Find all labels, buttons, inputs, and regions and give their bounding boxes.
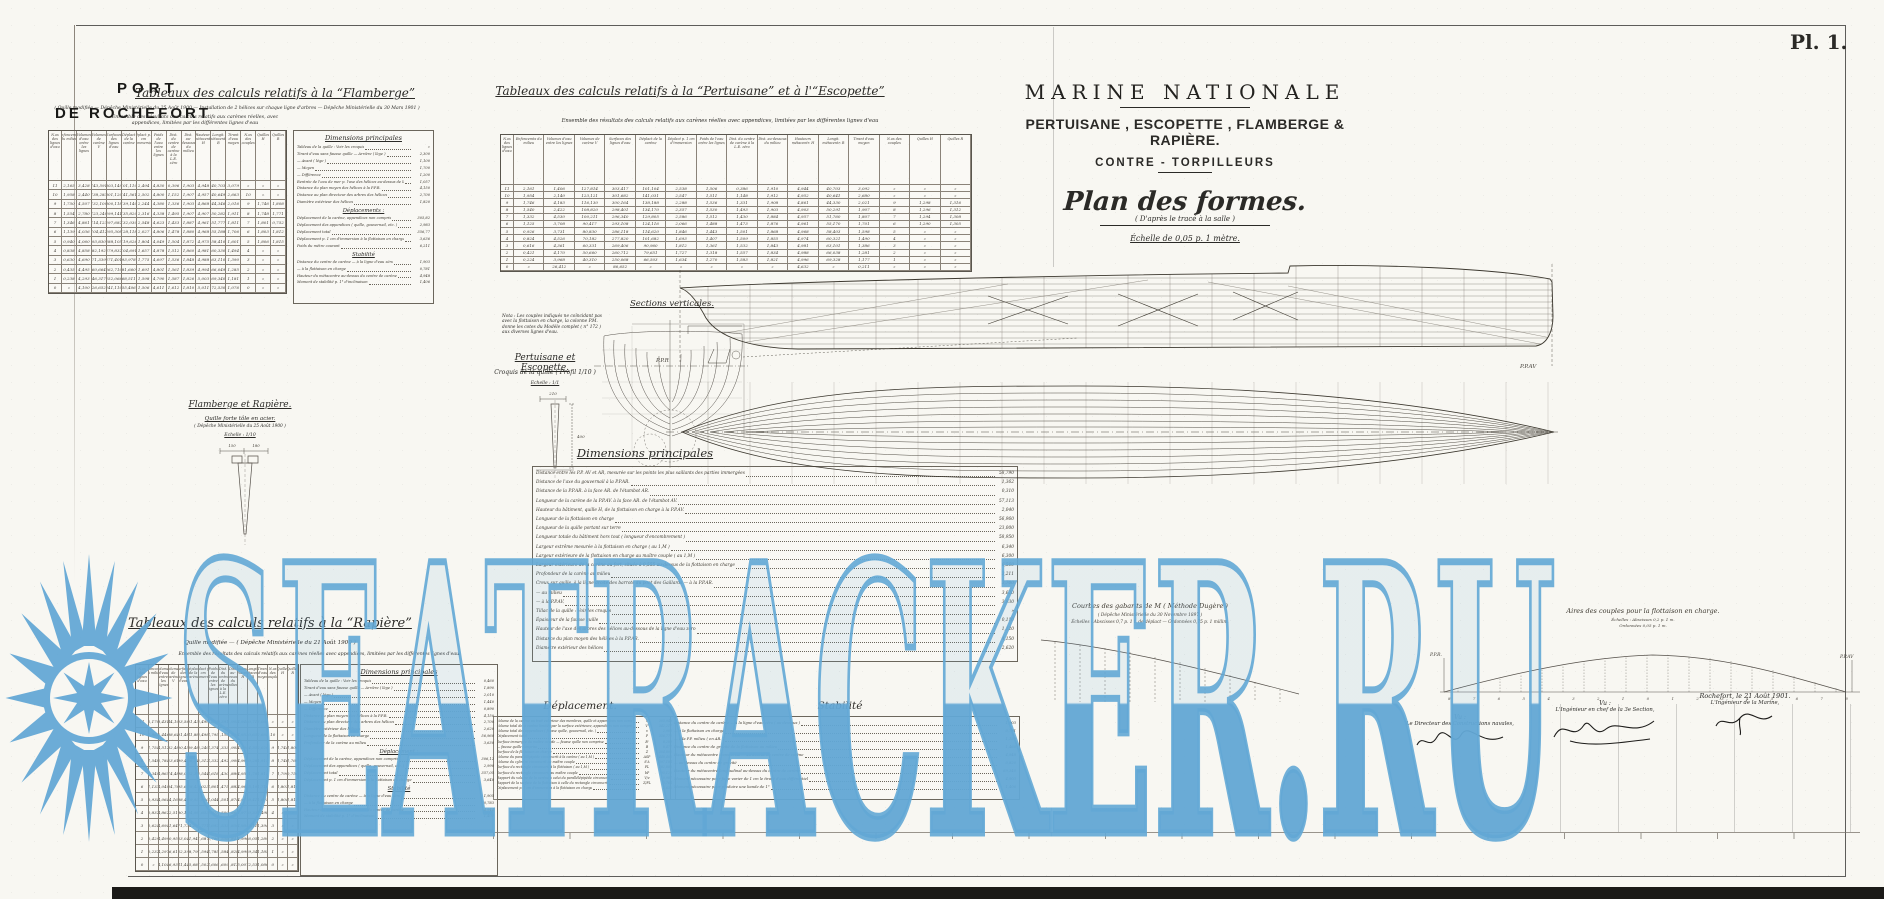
table-cell: 4,858 <box>77 246 92 255</box>
table-cell: » <box>288 858 298 871</box>
table-cell: Surfaces des lignes d'eau <box>605 135 635 185</box>
table-cell: 1,657 <box>137 246 152 255</box>
table-cell: 1,433 <box>167 218 182 227</box>
table-cell: 1,443 <box>697 228 727 235</box>
table-cell: 93,830 <box>92 237 107 246</box>
table-cell: 40,649 <box>211 190 226 199</box>
table-cell: » <box>271 190 286 199</box>
table-cell: » <box>910 228 940 235</box>
table-cell: 293,108 <box>605 221 635 228</box>
table-cell: Tirant d'eau moyen <box>849 135 879 185</box>
table-cell: 4,806 <box>152 228 167 237</box>
table-cell: 3,731 <box>544 228 574 235</box>
table-cell: Quilles R <box>271 131 286 181</box>
table-cell: 1,810 <box>182 284 197 293</box>
table-cell: 2,016 <box>226 200 241 209</box>
table-cell: 86,652 <box>605 264 635 271</box>
table-cell: 123,240 <box>92 209 107 218</box>
table-cell: 271,401 <box>107 256 122 265</box>
table-cell: 114,123 <box>92 218 107 227</box>
table-cell: 1,298 <box>910 199 940 206</box>
table-cell: 4,526 <box>544 235 574 242</box>
table-row: 101,9542,140123,121301,682141,0312,5471,… <box>501 192 971 199</box>
table-cell: 1 <box>241 274 256 283</box>
flamberge-table: N.os des lignes d'eauEnfoncemts du milie… <box>48 130 287 294</box>
list-item: — Moyen1,700 <box>297 165 430 172</box>
table-cell: 4,623 <box>152 218 167 227</box>
fr-sketch-scale: Echelle : 1/10 <box>210 433 270 438</box>
table-cell: 7 <box>49 218 62 227</box>
table-cell: N.os des couples <box>241 131 256 181</box>
table-cell: 1,488 <box>697 221 727 228</box>
table-cell: 260,712 <box>605 250 635 257</box>
table-cell: » <box>271 284 286 293</box>
border-top <box>76 25 1845 26</box>
title-marine-nationale: MARINE NATIONALE <box>1020 80 1350 104</box>
table-cell: 1,540 <box>514 207 544 214</box>
table-cell: 1,855 <box>758 235 788 242</box>
table-cell: 1,880 <box>182 228 197 237</box>
table-cell: 26,930 <box>169 858 179 871</box>
table-cell: 2,140 <box>544 192 574 199</box>
table-cell: » <box>271 246 286 255</box>
table-cell: 1,750 <box>62 200 77 209</box>
table-cell: 60,664 <box>92 265 107 274</box>
table-cell: 55,406 <box>122 284 137 293</box>
pe-dim-top: 210 <box>548 391 557 396</box>
table-cell: Quilles R <box>941 135 971 185</box>
aires-ppav-label: P.P.AV <box>1839 654 1854 660</box>
table-cell: 138,283 <box>92 190 107 199</box>
table-cell: 4,830 <box>152 181 167 190</box>
table-cell: 1,504 <box>167 237 182 246</box>
table-cell: 1,125 <box>514 221 544 228</box>
table-cell: 4,957 <box>196 190 211 199</box>
table-cell: 2,027 <box>137 228 152 237</box>
table-cell: 4,100 <box>77 284 92 293</box>
table-cell: 4,530 <box>544 214 574 221</box>
table-cell: 104,412 <box>92 228 107 237</box>
table-cell: 3 <box>880 242 910 249</box>
table-cell: 63,101 <box>819 242 849 249</box>
pe-dim-side: 400 <box>576 434 585 439</box>
table-cell: 2 <box>880 250 910 257</box>
table-cell: N.os des lignes d'eau <box>501 135 514 185</box>
table-cell: 4,948 <box>196 181 211 190</box>
table-cell: 1,601 <box>226 237 241 246</box>
table-cell: 0 <box>268 858 278 871</box>
table-cell: 1,808 <box>271 200 286 209</box>
table-cell: 7 <box>501 214 514 221</box>
table-cell: 101,104 <box>636 185 666 192</box>
table-cell: 1,281 <box>849 250 879 257</box>
table-cell: » <box>149 858 159 871</box>
table-cell: 301,682 <box>605 192 635 199</box>
table-cell: 4,903 <box>788 207 818 214</box>
table-cell: 1,907 <box>182 209 197 218</box>
table-cell: 1,294 <box>910 214 940 221</box>
table-cell: 1,494 <box>226 246 241 255</box>
table-cell: 0 <box>241 284 256 293</box>
tick-number: 1 <box>1671 696 1674 701</box>
table-cell: 0,224 <box>514 257 544 264</box>
table-cell: 44,330 <box>819 199 849 206</box>
table-cell: 119,626 <box>122 237 137 246</box>
table-cell: » <box>910 192 940 199</box>
table-cell: 4,361 <box>544 242 574 249</box>
list-item: Déplacement de la carène, appendices non… <box>297 215 430 222</box>
table-cell: 0,926 <box>514 228 544 235</box>
table-cell: 1,530 <box>697 207 727 214</box>
table-cell: 4 <box>501 235 514 242</box>
table-cell: 1,308 <box>941 214 971 221</box>
table-cell: 262,710 <box>107 265 122 274</box>
flamberge-title: Tableaux des calculs relatifs à la “Flam… <box>130 86 420 100</box>
table-cell: 7 <box>880 214 910 221</box>
table-cell: 1,701 <box>849 221 879 228</box>
table-cell: 123,121 <box>575 192 605 199</box>
table-cell: 4,801 <box>152 265 167 274</box>
list-item: Hauteur du métacentre au-dessus du centr… <box>297 273 430 280</box>
table-cell: 60,330 <box>211 246 226 255</box>
table-cell: 4,293 <box>77 274 92 283</box>
table-cell: 303,149 <box>107 181 122 190</box>
table-cell: 1,598 <box>849 228 879 235</box>
flamberge-panel-sub1-items: Déplacement de la carène, appendices non… <box>297 215 430 250</box>
table-cell: 8 <box>501 207 514 214</box>
table-cell: » <box>271 265 286 274</box>
table-cell: N.os des couples <box>880 135 910 185</box>
table-cell: 2,502 <box>137 190 152 199</box>
list-item: Déplacement des appendices ( quille, gou… <box>297 222 430 229</box>
table-cell: 4,606 <box>209 858 219 871</box>
table-cell: Dist. au-dessous du milieu <box>182 131 197 181</box>
table-cell: 1,903 <box>758 207 788 214</box>
table-cell: 4,861 <box>77 218 92 227</box>
table-cell: 1,826 <box>182 274 197 283</box>
table-cell: » <box>256 274 271 283</box>
table-cell: 1,557 <box>727 250 757 257</box>
table-cell: Déplact p. 1 cm d'immersion <box>137 131 152 181</box>
table-cell: 1,958 <box>62 190 77 199</box>
table-cell: 143,591 <box>92 181 107 190</box>
table-cell: 0,616 <box>514 242 544 249</box>
table-cell: 4,981 <box>788 242 818 249</box>
table-cell: 1,430 <box>727 214 757 221</box>
table-cell: 297,682 <box>107 218 122 227</box>
list-item: Hauteur du bâtiment, quille H, de la flo… <box>536 506 1014 515</box>
table-cell: 1,506 <box>697 185 727 192</box>
table-cell: 40,703 <box>819 185 849 192</box>
table-cell: 4,974 <box>788 235 818 242</box>
table-cell: 5 <box>501 228 514 235</box>
table-cell: 51,777 <box>211 218 226 227</box>
table-cell: 4,944 <box>788 185 818 192</box>
table-cell: Enfoncemts du milieu <box>62 131 77 181</box>
signature-right-block: Rochefort, le 21 Août 1901. L'Ingénieur … <box>1680 692 1810 740</box>
table-cell: 116,130 <box>575 199 605 206</box>
table-cell: 80,830 <box>575 228 605 235</box>
table-cell: 2,663 <box>226 190 241 199</box>
table-cell: 6 <box>880 221 910 228</box>
table-cell: 93,978 <box>122 256 137 265</box>
table-cell: 4,981 <box>196 246 211 255</box>
fr-keel-sketch: 150 180 <box>208 442 278 550</box>
table-cell: 9 <box>49 200 62 209</box>
table-row: 30,6164,36160,331269,40690,9601,8121,361… <box>501 242 971 249</box>
table-cell: 4,968 <box>788 228 818 235</box>
table-cell: 1,746 <box>514 199 544 206</box>
table-cell: 2,357 <box>666 207 696 214</box>
table-cell: 4,170 <box>544 250 574 257</box>
table-cell: 1,846 <box>666 228 696 235</box>
table-cell: 2,548 <box>137 218 152 227</box>
table-cell: 4,611 <box>152 284 167 293</box>
table-cell: 6 <box>49 228 62 237</box>
table-cell: 1,361 <box>697 242 727 249</box>
table-cell: 0 <box>49 284 62 293</box>
title-ships: PERTUISANE , ESCOPETTE , FLAMBERGE & RAP… <box>1020 116 1350 148</box>
table-cell: 129,805 <box>636 214 666 221</box>
table-cell: 10 <box>501 192 514 199</box>
table-cell: 1,612 <box>167 284 182 293</box>
table-cell: 1,296 <box>910 207 940 214</box>
list-item: Distance du plan moyen des hélices à la … <box>297 185 430 192</box>
table-cell: 3,968 <box>544 257 574 264</box>
title-underline-1 <box>1120 107 1250 108</box>
table-cell: 139,140 <box>122 200 137 209</box>
table-cell: 1,332 <box>514 214 544 221</box>
table-row: 61,1394,036104,412295,308128,1182,0274,8… <box>49 228 286 237</box>
table-cell: 4,495 <box>77 265 92 274</box>
table-cell: 1,495 <box>167 209 182 218</box>
signature-right-autograph <box>1710 706 1780 736</box>
table-cell: » <box>910 250 940 257</box>
list-item: — Différence1,200 <box>297 172 430 179</box>
table-cell: » <box>271 256 286 265</box>
table-cell: 1,536 <box>697 199 727 206</box>
table-cell: 1,312 <box>941 207 971 214</box>
table-cell: 1,285 <box>226 265 241 274</box>
sheer-ppr-label: P.P.R <box>655 358 669 364</box>
table-cell: 9 <box>880 199 910 206</box>
table-cell: 1,812 <box>666 242 696 249</box>
table-cell: 1,473 <box>727 221 757 228</box>
table-cell: 1,512 <box>167 246 182 255</box>
table-row: 20,4214,17050,660260,71279,6511,7271,318… <box>501 250 971 257</box>
table-cell: Hauteurs métacentr. H <box>196 131 211 181</box>
table-cell: 4,507 <box>77 200 92 209</box>
table-cell: 1,406 <box>544 185 574 192</box>
table-cell: 1,911 <box>226 209 241 218</box>
table-cell: » <box>910 235 940 242</box>
title-type: CONTRE - TORPILLEURS <box>1020 157 1350 169</box>
table-cell: 4,104 <box>159 858 169 871</box>
list-item: Longueur de la carène de la P.P.AV. à la… <box>536 497 1014 506</box>
table-row: 10,2384,29346,317252,06668,5111,5984,790… <box>49 274 286 283</box>
table-cell: 1,493 <box>727 207 757 214</box>
table-cell: 101,110 <box>122 181 137 190</box>
table-cell: » <box>271 274 286 283</box>
table-cell: 2 <box>501 250 514 257</box>
table-cell: Volumes de carène V <box>92 131 107 181</box>
scanned-plan-sheet: PORT DE ROCHEFORT Pl. 1. MARINE NATIONAL… <box>0 0 1884 899</box>
table-cell: » <box>941 242 971 249</box>
table-cell: Tirant d'eau moyen <box>226 131 241 181</box>
flamberge-panel-items: Tableau de la quille : Voir les croquis»… <box>297 144 430 206</box>
table-cell: 141,031 <box>636 192 666 199</box>
watermark-star-logo <box>2 548 177 848</box>
table-cell: 1,407 <box>697 235 727 242</box>
list-item: — Avant ( lège )1,100 <box>297 158 430 165</box>
table-cell: 66,038 <box>819 250 849 257</box>
table-cell: 1,876 <box>758 221 788 228</box>
table-cell: 2,440 <box>77 190 92 199</box>
table-row: 112,1611,406127,814303,417101,1042,5381,… <box>501 185 971 192</box>
table-cell: 2,316 <box>137 209 152 218</box>
table-cell: 134,170 <box>636 207 666 214</box>
table-row: 40,8384,85882,192279,832104,6911,6574,87… <box>49 246 286 255</box>
pertuisane-table: N.os des lignes d'eauEnfoncemts du milie… <box>500 134 972 272</box>
table-cell: Quilles H <box>256 131 271 181</box>
table-cell: 0 <box>136 858 149 871</box>
title-scale: Échelle de 0,05 p. 1 mètre. <box>1020 234 1350 243</box>
table-row: 50,9263,73180,830286,118114,6201,8461,44… <box>501 228 971 235</box>
table-cell: Poids de l'eau entre les lignes <box>697 135 727 185</box>
table-cell: 1 <box>501 257 514 264</box>
table-cell: Hauteurs métacentr. H <box>788 135 818 185</box>
flamberge-dimensions-panel: Dimensions principales Tableau de la qui… <box>293 130 434 304</box>
table-cell: 79,651 <box>636 250 666 257</box>
table-cell: 40,641 <box>819 192 849 199</box>
table-cell: 1,872 <box>182 237 197 246</box>
table-cell: 2,244 <box>137 200 152 209</box>
pe-sketch-scale: Echelle : 1/1 <box>515 381 575 386</box>
table-cell: Enfoncemts du milieu <box>514 135 544 185</box>
table-row: 81,5402,422108,820298,401134,1702,3571,5… <box>501 207 971 214</box>
table-cell: 70,182 <box>575 235 605 242</box>
table-cell: » <box>910 185 940 192</box>
table-cell: 1,748 <box>256 209 271 218</box>
table-cell: 4,968 <box>196 228 211 237</box>
table-cell: » <box>256 256 271 265</box>
table-cell: 60,321 <box>819 235 849 242</box>
table-cell: 1,706 <box>226 228 241 237</box>
table-cell: 1,860 <box>182 246 197 255</box>
table-cell: 135,820 <box>122 209 137 218</box>
tick-number: 7 <box>1820 696 1823 701</box>
table-cell: 2,680 <box>849 192 879 199</box>
table-cell: 1,305 <box>941 221 971 228</box>
table-cell: 279,832 <box>107 246 122 255</box>
table-cell: » <box>271 181 286 190</box>
table-cell: 1,848 <box>182 256 197 265</box>
table-cell: 1,331 <box>727 199 757 206</box>
scan-edge <box>112 887 1884 899</box>
pertuisane-title: Tableaux des calculs relatifs à la “Pert… <box>470 84 910 98</box>
table-cell: » <box>941 235 971 242</box>
list-item: Moment de stabilité p. 1° d'inclinaison1… <box>297 279 430 286</box>
table-cell: 269,406 <box>605 242 635 249</box>
table-cell: 1,910 <box>758 185 788 192</box>
pe-sketch-sub: Croquis de la quille ( Profil 1/10 ) <box>490 369 600 376</box>
table-cell: 1,290 <box>910 221 940 228</box>
title-block: MARINE NATIONALE PERTUISANE , ESCOPETTE … <box>1020 80 1350 243</box>
table-row: 61,1253,70890,417293,108124,1162,0661,48… <box>501 221 971 228</box>
table-cell: 241,110 <box>107 284 122 293</box>
table-cell: 124,116 <box>636 221 666 228</box>
table-cell: 44,346 <box>211 200 226 209</box>
table-cell: 1,536 <box>167 256 182 265</box>
list-item: Longueur de la quille portant sur terre2… <box>536 524 1014 533</box>
flamberge-subtitle: ( Quille modifiée — Dépêche Ministériell… <box>42 106 432 111</box>
list-item: Déplacement total356,77 <box>297 229 430 236</box>
table-cell: 1,691 <box>137 265 152 274</box>
table-row: 112,1653,428143,591303,149101,1102,4944,… <box>49 181 286 190</box>
table-cell: 1,903 <box>182 181 197 190</box>
table-cell: 132,100 <box>92 200 107 209</box>
table-cell: 0,396 <box>167 181 182 190</box>
table-row: 50,9404,06093,830288,105119,6261,8044,04… <box>49 237 286 246</box>
table-cell: 11 <box>49 181 62 190</box>
table-cell: Poids de l'eau entre les lignes <box>152 131 167 181</box>
table-cell: 241,440 <box>179 858 189 871</box>
table-cell: 250,068 <box>605 257 635 264</box>
table-cell: Déplact de la carène <box>636 135 666 185</box>
signature-right-date: Rochefort, le 21 Août 1901. <box>1680 692 1810 700</box>
watermark-text-glyphs: SEATRACKER.RU <box>176 540 1556 850</box>
title-underline-3 <box>1100 225 1270 226</box>
table-cell: 1,907 <box>182 190 197 199</box>
table-cell: 2,288 <box>666 199 696 206</box>
watermark-text: SEATRACKER.RU <box>168 540 1568 850</box>
table-cell: 4,957 <box>788 214 818 221</box>
table-cell: 4,036 <box>77 228 92 237</box>
table-cell: 1,907 <box>849 207 879 214</box>
table-cell: 5 <box>49 237 62 246</box>
table-cell: Volumes de carène V <box>575 135 605 185</box>
table-cell: Surfaces des lignes d'eau <box>107 131 122 181</box>
table-cell: 1,812 <box>271 228 286 237</box>
table-cell: 1,148 <box>727 192 757 199</box>
table-cell: » <box>941 185 971 192</box>
table-row: 71,3464,861114,123297,682132,0302,5484,6… <box>49 218 286 227</box>
table-cell: 4,952 <box>788 192 818 199</box>
table-cell: 1,139 <box>62 228 77 237</box>
table-cell: Longit. métacentr. R <box>211 131 226 181</box>
table-cell: 2,165 <box>62 181 77 190</box>
list-item: Distance au plan directeur des arbres de… <box>297 192 430 199</box>
table-cell: 252,066 <box>107 274 122 283</box>
border-bottom <box>128 876 1845 877</box>
table-cell: 4 <box>880 235 910 242</box>
table-cell: 1,884 <box>758 214 788 221</box>
table-cell: 1,598 <box>137 274 152 283</box>
table-cell: 3,428 <box>77 181 92 190</box>
fr-sketch-title: Flamberge et Rapière. <box>188 400 292 410</box>
table-cell: 8 <box>49 209 62 218</box>
table-cell: » <box>575 264 605 271</box>
table-cell: 0,630 <box>62 256 77 265</box>
table-cell: 71,339 <box>92 256 107 265</box>
table-cell: 82,192 <box>92 246 107 255</box>
table-cell: 4,975 <box>196 237 211 246</box>
table-cell: 296,340 <box>605 214 635 221</box>
table-cell: 4 <box>241 246 256 255</box>
table-cell: 1,152 <box>167 190 182 199</box>
table-cell: 1,806 <box>256 237 271 246</box>
table-cell: 4,380 <box>152 200 167 209</box>
